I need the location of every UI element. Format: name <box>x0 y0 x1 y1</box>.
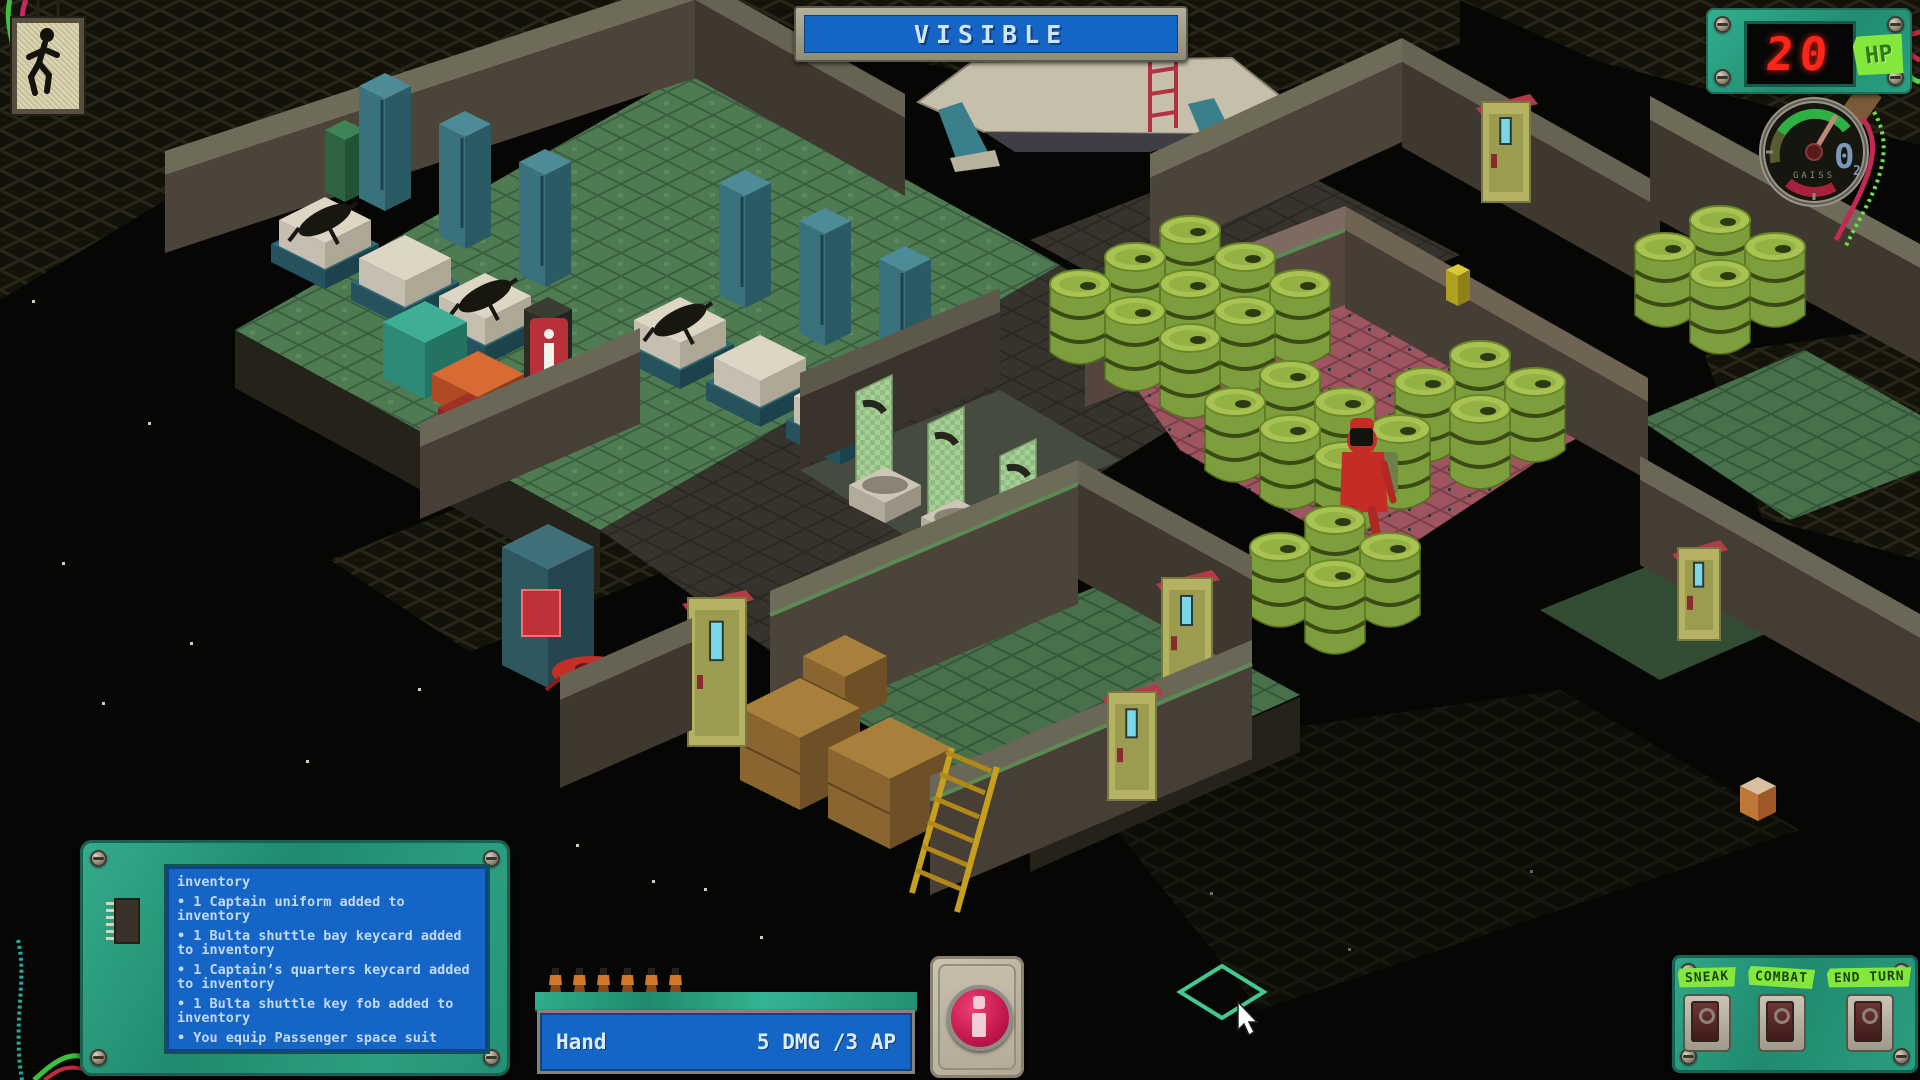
weapon-bar[interactable]: Hand 5 DMG /3 AP <box>535 992 917 1074</box>
sneak-label: SNEAK <box>1678 965 1737 989</box>
info-button-panel <box>930 956 1024 1078</box>
weapon-bar-plate <box>535 992 917 1012</box>
sneak-switch[interactable] <box>1683 994 1731 1052</box>
log-message: • 1 Bulta shuttle key fob added to inven… <box>177 997 477 1026</box>
running-man-icon <box>17 23 69 99</box>
end-turn-button[interactable]: END TURN <box>1827 967 1912 1052</box>
hp-unit-tag: HP <box>1852 31 1907 79</box>
circuit-chip <box>114 898 140 944</box>
log-message: • 1 Captain uniform added to inventory <box>177 895 477 924</box>
door[interactable] <box>1476 94 1538 202</box>
mouse-cursor <box>1238 1002 1257 1035</box>
visibility-state-label: VISIBLE <box>914 20 1068 49</box>
weapon-stats: 5 DMG /3 AP <box>757 1030 896 1054</box>
door[interactable] <box>1672 540 1728 640</box>
log-message: • You equip Passenger space suit <box>177 1031 477 1046</box>
log-message: • 1 Bulta shuttle bay keycard added to i… <box>177 929 477 958</box>
weapon-name: Hand <box>556 1030 607 1054</box>
log-message: • 1 Captain’s quarters keycard added to … <box>177 963 477 992</box>
visibility-banner: VISIBLE <box>794 6 1188 62</box>
info-button[interactable] <box>947 985 1013 1051</box>
info-icon <box>973 996 985 1009</box>
hp-value: 20 <box>1764 27 1836 81</box>
oxygen-gauge: GAISS 0 2 <box>1756 94 1872 210</box>
gauge-label: GAISS <box>1793 171 1835 181</box>
end-turn-label: END TURN <box>1827 966 1912 990</box>
visibility-banner-screen: VISIBLE <box>804 15 1178 53</box>
action-panel: SNEAK COMBAT END TURN <box>1672 955 1918 1073</box>
message-log-panel: inventory• 1 Captain uniform added to in… <box>80 840 510 1076</box>
gauge-value-subscript: 2 <box>1853 164 1861 179</box>
exit-sign[interactable] <box>12 18 84 114</box>
gauge-value: 0 <box>1834 137 1854 177</box>
end-turn-switch[interactable] <box>1846 994 1894 1052</box>
combat-button[interactable]: COMBAT <box>1748 967 1815 1052</box>
hp-lcd: 20 <box>1744 21 1856 87</box>
log-message: inventory <box>177 875 477 890</box>
door[interactable] <box>1102 684 1164 800</box>
hp-panel: 20 HP <box>1706 8 1912 94</box>
game-screen: VISIBLE 20 HP GAISS 0 2 inv <box>0 0 1920 1080</box>
combat-label: COMBAT <box>1748 966 1816 989</box>
sneak-button[interactable]: SNEAK <box>1678 967 1736 1052</box>
door[interactable] <box>682 590 754 746</box>
message-log-screen[interactable]: inventory• 1 Captain uniform added to in… <box>166 866 488 1052</box>
combat-switch[interactable] <box>1758 994 1806 1052</box>
